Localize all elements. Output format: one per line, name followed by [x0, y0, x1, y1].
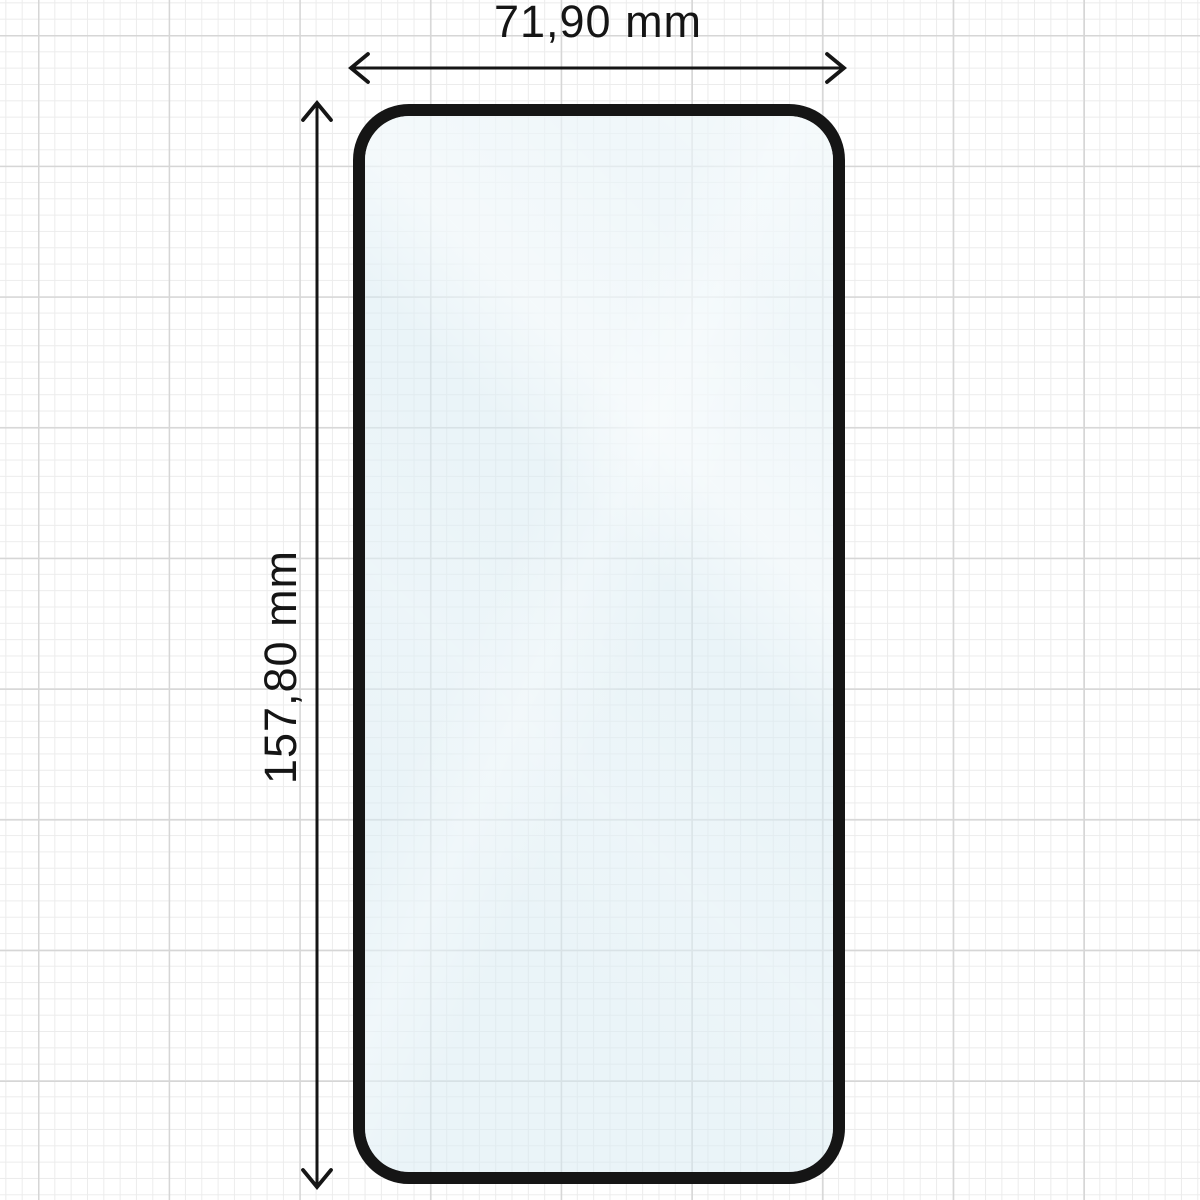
dimension-diagram: 71,90 mm 157,80 mm	[0, 0, 1200, 1200]
arrow-down-icon	[303, 1170, 331, 1187]
height-dimension-arrow	[303, 103, 331, 1187]
arrow-up-icon	[303, 103, 331, 120]
glass-reflection	[365, 116, 833, 1172]
arrow-left-icon	[351, 54, 368, 82]
height-dimension-label: 157,80 mm	[255, 550, 307, 784]
arrow-right-icon	[827, 54, 844, 82]
screen-protector-outline	[353, 104, 845, 1184]
width-dimension-arrow	[351, 54, 844, 82]
width-dimension-label: 71,90 mm	[494, 0, 702, 48]
